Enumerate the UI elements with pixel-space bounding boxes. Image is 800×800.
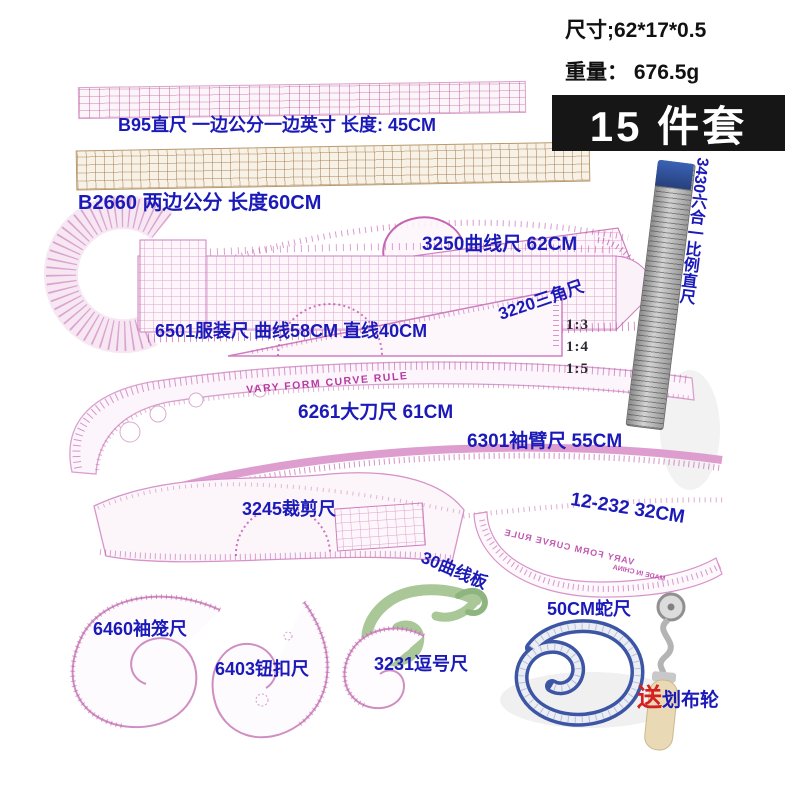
ruler-3245-label: 3245裁剪尺 xyxy=(242,495,336,521)
gift-tool-name: 划布轮 xyxy=(662,690,719,711)
weight-text: 重量： 676.5g xyxy=(565,56,699,86)
size-text: 尺寸;62*17*0.5 xyxy=(565,14,706,44)
ruler-6460-label: 6460袖笼尺 xyxy=(93,615,187,641)
snake-ruler-label: 50CM蛇尺 xyxy=(547,595,631,621)
ruler-6403-label: 6403钮扣尺 xyxy=(215,655,309,681)
ruler-b2660-label: B2660 两边公分 长度60CM xyxy=(78,186,321,215)
ruler-6301-label: 6301袖臂尺 55CM xyxy=(467,426,622,453)
ruler-b95-label: B95直尺 一边公分一边英寸 长度: 45CM xyxy=(118,111,436,137)
set-count-badge: 15 件套 xyxy=(552,95,785,151)
tracing-wheel xyxy=(643,594,684,751)
ratio-1-5: 1:5 xyxy=(566,361,589,378)
gift-wheel-label: 送划布轮 xyxy=(637,678,719,714)
product-photo: 尺寸;62*17*0.5 重量： 676.5g 15 件套 B95直尺 一边公分… xyxy=(0,0,800,800)
ratio-1-4: 1:4 xyxy=(566,339,589,356)
ruler-6261-label: 6261大刀尺 61CM xyxy=(298,397,453,424)
ratio-1-3: 1:3 xyxy=(566,317,589,334)
gift-character: 送 xyxy=(637,684,662,712)
ruler-6501-label: 6501服装尺 曲线58CM 直线40CM xyxy=(155,317,427,343)
ruler-3250-label: 3250曲线尺 62CM xyxy=(422,229,577,256)
ruler-3231-label: 3231逗号尺 xyxy=(374,650,468,676)
